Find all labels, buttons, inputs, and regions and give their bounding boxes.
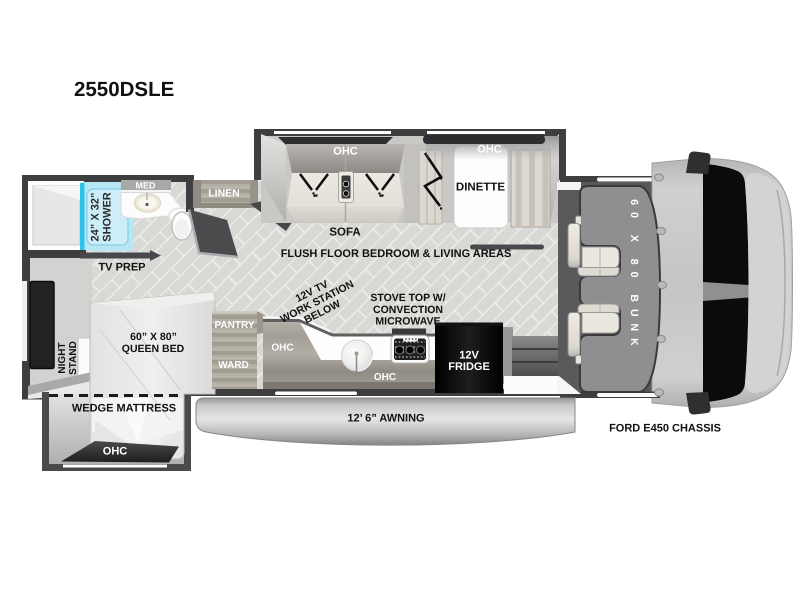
svg-text:OHC: OHC xyxy=(271,343,293,354)
svg-text:SHOWER: SHOWER xyxy=(102,192,114,242)
svg-text:WEDGE MATTRESS: WEDGE MATTRESS xyxy=(72,403,176,415)
svg-text:MICROWAVE: MICROWAVE xyxy=(375,316,440,328)
svg-text:OHC: OHC xyxy=(374,372,396,383)
svg-text:OHC: OHC xyxy=(333,146,358,158)
svg-text:24” X 32”: 24” X 32” xyxy=(90,193,102,242)
svg-text:OHC: OHC xyxy=(103,446,128,458)
svg-text:CONVECTION: CONVECTION xyxy=(373,304,443,316)
svg-text:OHC: OHC xyxy=(477,144,502,156)
svg-text:STOVE TOP W/: STOVE TOP W/ xyxy=(370,292,445,304)
svg-text:60” X 80”: 60” X 80” xyxy=(130,331,177,343)
svg-text:WARD: WARD xyxy=(218,360,249,371)
svg-text:PANTRY: PANTRY xyxy=(215,320,255,331)
svg-text:NIGHT: NIGHT xyxy=(57,342,68,373)
svg-text:60 X 80 BUNK: 60 X 80 BUNK xyxy=(628,199,640,352)
svg-text:12’ 6” AWNING: 12’ 6” AWNING xyxy=(347,413,424,425)
svg-text:DINETTE: DINETTE xyxy=(456,182,506,194)
svg-text:FLUSH FLOOR BEDROOM & LIVING A: FLUSH FLOOR BEDROOM & LIVING AREAS xyxy=(281,248,512,260)
svg-text:SOFA: SOFA xyxy=(329,227,360,239)
svg-text:FRIDGE: FRIDGE xyxy=(448,361,490,373)
svg-text:LINEN: LINEN xyxy=(208,188,240,200)
svg-text:12V: 12V xyxy=(459,350,479,362)
svg-text:TV PREP: TV PREP xyxy=(98,262,145,274)
svg-text:2550DSLE: 2550DSLE xyxy=(74,78,174,101)
svg-text:QUEEN BED: QUEEN BED xyxy=(122,343,185,355)
svg-text:FORD E450 CHASSIS: FORD E450 CHASSIS xyxy=(609,423,721,435)
svg-text:STAND: STAND xyxy=(68,341,79,375)
svg-text:MED: MED xyxy=(136,181,157,191)
